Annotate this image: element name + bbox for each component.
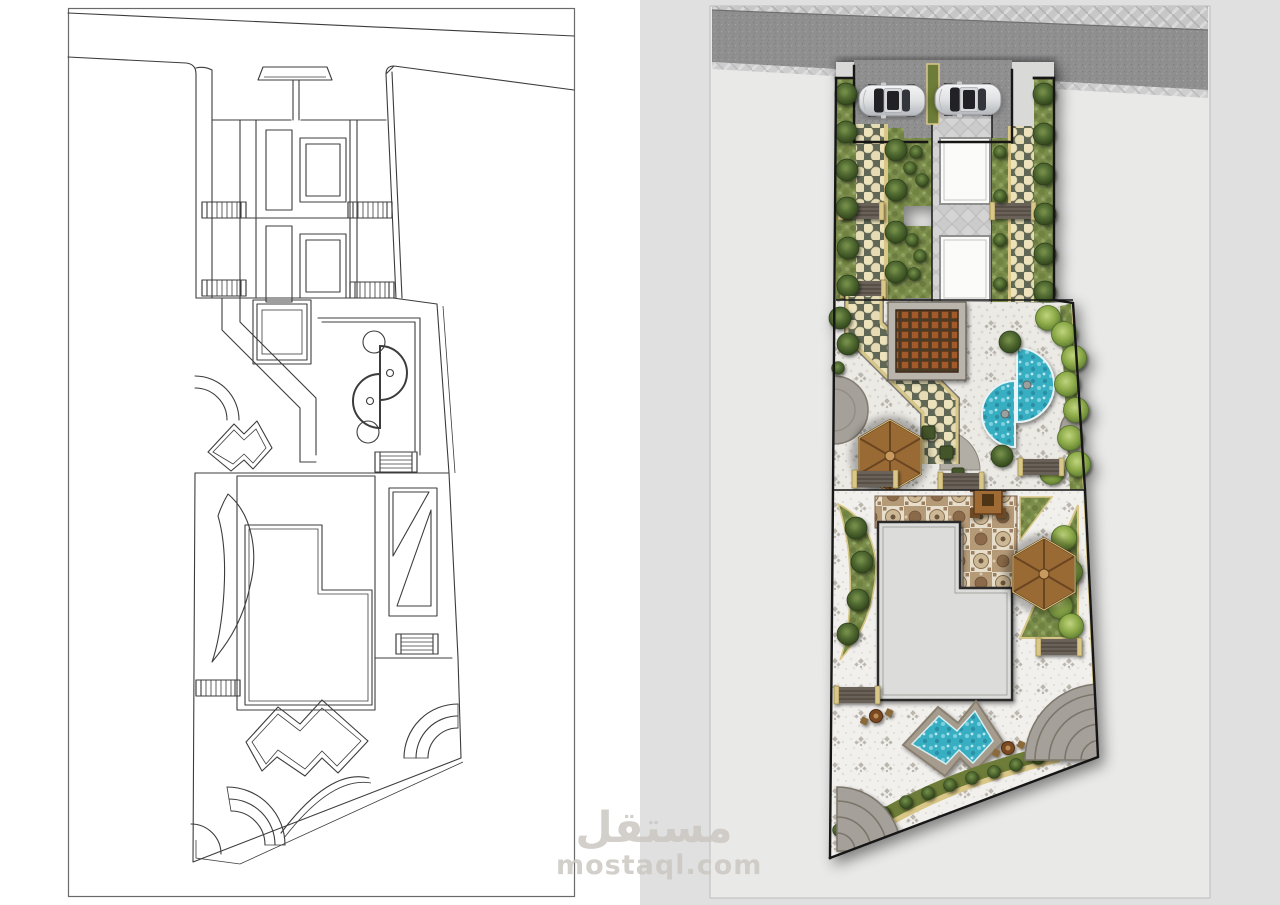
gazebo-2	[1004, 534, 1084, 614]
cad-plan-panel	[0, 0, 640, 905]
middle-garden	[800, 296, 1112, 496]
presentation-canvas: مستقل mostaql.com	[0, 0, 1280, 905]
upper-section	[835, 60, 1056, 303]
render-plan-panel	[640, 0, 1280, 905]
car-2	[934, 82, 1002, 118]
court-2	[940, 236, 990, 302]
lawn-strip-right	[1034, 78, 1054, 302]
pergola	[888, 302, 966, 380]
car-1	[858, 83, 926, 119]
cad-line-drawing	[0, 0, 640, 905]
rendered-plan	[640, 0, 1280, 905]
cad-frame	[69, 9, 575, 897]
court-1	[940, 138, 990, 204]
